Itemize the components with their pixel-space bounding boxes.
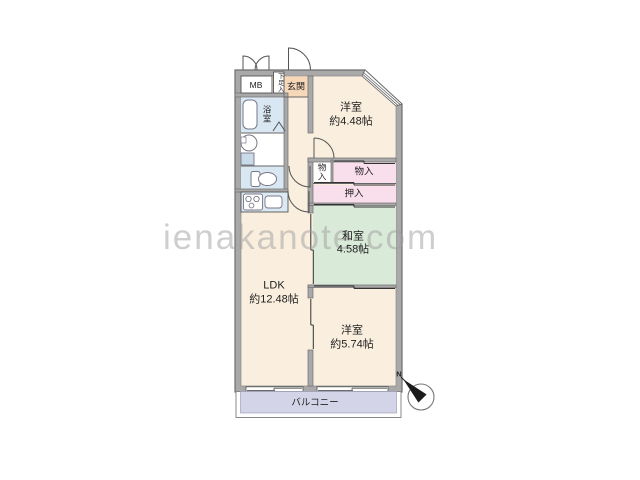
compass-icon <box>401 377 434 410</box>
label-western-top-name: 洋室 <box>340 101 362 114</box>
label-entrance: 玄関 <box>287 81 305 92</box>
label-balcony: バルコニー <box>291 397 338 408</box>
laundry-pan <box>241 153 254 165</box>
label-japanese-room-name: 和室 <box>342 230 364 243</box>
label-closet: 押入 <box>344 188 363 199</box>
toilet-bowl <box>259 173 277 186</box>
label-shoe-box: 下足入 <box>275 73 282 93</box>
label-bathroom: 浴室 <box>262 105 272 123</box>
bathtub <box>243 100 257 129</box>
label-western-top-size: 約4.48帖 <box>329 115 372 128</box>
label-storage-small: 物入 <box>317 163 327 181</box>
floorplan: ienakanote.com MB 下足入 玄関 浴室 洋室 約4.48帖 物入… <box>0 0 640 480</box>
label-ldk-name: LDK <box>263 279 284 292</box>
sink <box>265 196 282 208</box>
label-japanese-room-size: 4.58帖 <box>337 243 369 256</box>
label-storage-wide: 物入 <box>354 166 373 177</box>
windows <box>246 387 388 392</box>
label-compass-north: N <box>396 370 401 379</box>
label-ldk-size: 約12.48帖 <box>249 293 299 306</box>
label-western-bottom-size: 約5.74帖 <box>330 338 373 351</box>
label-meter-box: MB <box>250 79 263 89</box>
watermark-text: ienakanote.com <box>163 218 438 258</box>
entrance-door <box>289 48 311 70</box>
label-western-bottom-name: 洋室 <box>341 324 363 337</box>
